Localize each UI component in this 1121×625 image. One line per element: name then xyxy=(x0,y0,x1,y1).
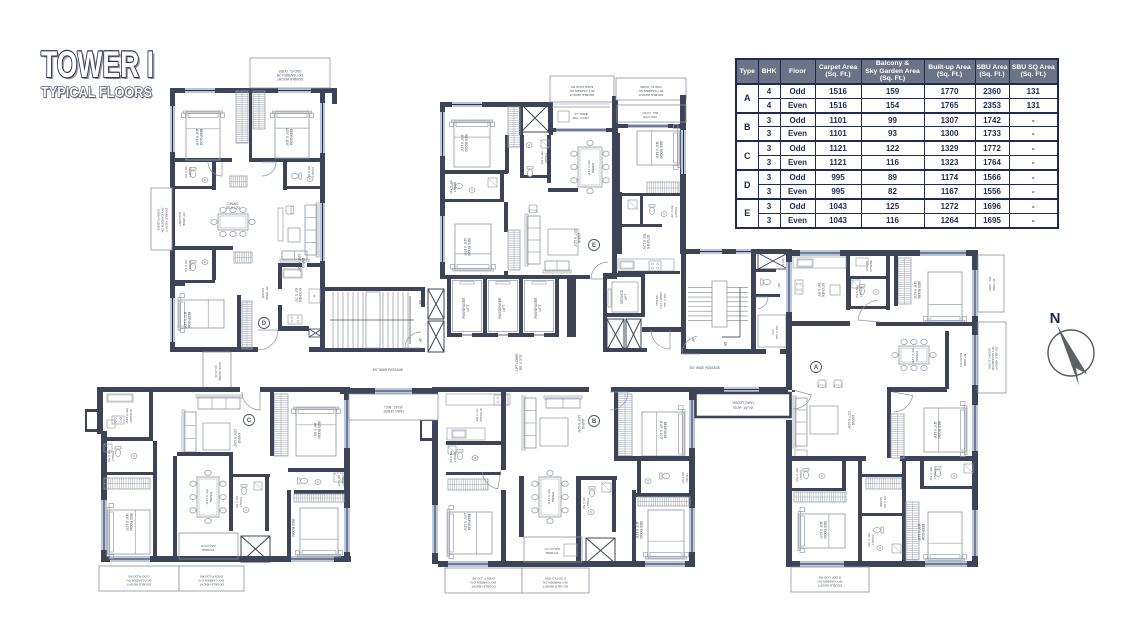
svg-text:HVAC LEDGE: HVAC LEDGE xyxy=(731,401,753,405)
svg-text:BAL. CONY: BAL. CONY xyxy=(988,277,992,292)
svg-text:PASSENGER: PASSENGER xyxy=(498,297,502,318)
svg-text:UP: UP xyxy=(418,338,422,342)
svg-text:11'6" X 12'0": 11'6" X 12'0" xyxy=(913,281,917,299)
svg-text:11'5" X 11'6": 11'5" X 11'6" xyxy=(917,523,921,541)
svg-text:8'0" X 6'0": 8'0" X 6'0" xyxy=(775,325,779,339)
svg-text:5'0 X 8'6: 5'0 X 8'6 xyxy=(184,260,188,272)
svg-text:DN: DN xyxy=(723,342,727,347)
svg-text:8'0" X 5'6": 8'0" X 5'6" xyxy=(795,468,799,482)
svg-text:9'6" X 8'0": 9'6" X 8'0" xyxy=(817,283,821,297)
svg-text:10'0" X 11'6": 10'0" X 11'6" xyxy=(285,128,289,146)
svg-text:8'0" X 7'0": 8'0" X 7'0" xyxy=(294,288,298,302)
svg-text:8'0 X 12'0: 8'0 X 12'0 xyxy=(226,206,240,210)
svg-text:11'6" X 12'0": 11'6" X 12'0" xyxy=(819,521,823,539)
svg-text:8'0" X 5'0": 8'0" X 5'0" xyxy=(449,180,453,194)
svg-text:LIFT: LIFT xyxy=(502,305,506,312)
svg-text:FOYER: FOYER xyxy=(261,288,265,299)
svg-text:7'6" X 8'0": 7'6" X 8'0" xyxy=(475,408,479,422)
svg-text:O DD FLOO RS: O DD FLOO RS xyxy=(128,575,150,579)
svg-text:8'0" X 5'6": 8'0" X 5'6" xyxy=(929,467,933,481)
svg-text:EVEN F LOO RS: EVEN F LOO RS xyxy=(472,577,495,581)
svg-text:14'0" X 12'0": 14'0" X 12'0" xyxy=(463,513,467,531)
svg-text:BA LCONY: BA LCONY xyxy=(200,544,215,548)
svg-text:8'0 X 5'6: 8'0 X 5'6 xyxy=(307,166,311,178)
svg-text:BAL. CONY: BAL. CONY xyxy=(573,116,589,120)
svg-text:8'0" WIDE PASSAGE: 8'0" WIDE PASSAGE xyxy=(373,368,403,372)
svg-text:BAL. CONY: BAL. CONY xyxy=(642,111,658,115)
svg-text:8'0" X 12'0": 8'0" X 12'0" xyxy=(205,489,209,504)
svg-text:8'0 X 5'0: 8'0 X 5'0 xyxy=(449,451,453,463)
svg-text:5'0 X 8'6: 5'0 X 8'6 xyxy=(184,166,188,178)
svg-text:WC: WC xyxy=(777,283,781,288)
svg-text:8'0" X 12'0": 8'0" X 12'0" xyxy=(587,160,591,175)
svg-text:8'0" X 12'0": 8'0" X 12'0" xyxy=(642,234,646,250)
svg-text:8'0" X 5'0": 8'0" X 5'0" xyxy=(540,151,544,165)
svg-text:EVEN F LOO RS: EVEN F LOO RS xyxy=(200,575,223,579)
svg-text:UP: UP xyxy=(691,338,695,342)
svg-text:LIFT: LIFT xyxy=(624,294,628,301)
svg-text:C: C xyxy=(247,418,252,424)
svg-text:ODD FL. OORS: ODD FL. OORS xyxy=(279,69,302,73)
svg-text:E: E xyxy=(592,243,596,249)
svg-text:8'0" X 12'6": 8'0" X 12'6" xyxy=(911,348,915,363)
svg-text:O ODF L OO RS: O ODF L OO RS xyxy=(819,576,841,580)
svg-text:8'0 X 5'0: 8'0 X 5'0 xyxy=(107,450,111,462)
svg-text:8'6" X 8'0": 8'6" X 8'0" xyxy=(313,423,317,437)
svg-text:3'7 WIDE: 3'7 WIDE xyxy=(869,260,873,272)
svg-text:20'7" X 12'0": 20'7" X 12'0" xyxy=(573,229,577,247)
svg-text:11'0" X 11'6": 11'0" X 11'6" xyxy=(933,421,937,439)
svg-text:EVEN FLOORS: EVEN FLOORS xyxy=(157,209,161,230)
svg-text:D: D xyxy=(262,321,267,327)
svg-text:14'9" X 12'6": 14'9" X 12'6" xyxy=(577,415,581,433)
svg-text:BALCO NY: BALCO NY xyxy=(544,547,559,551)
svg-text:AT 32'0": AT 32'0" xyxy=(781,257,785,267)
svg-text:N: N xyxy=(1050,310,1061,327)
svg-text:(FLAT - B/C): (FLAT - B/C) xyxy=(385,405,403,409)
svg-text:DN: DN xyxy=(418,300,422,305)
svg-text:8'0" X 12'2": 8'0" X 12'2" xyxy=(125,408,129,423)
svg-text:PASSENGER: PASSENGER xyxy=(462,297,466,318)
svg-text:8'0 X 5'0: 8'0 X 5'0 xyxy=(855,286,859,298)
svg-text:19'0" X 12'6": 19'0" X 12'6" xyxy=(233,429,237,447)
svg-text:11'6" X 11'0": 11'6" X 11'0" xyxy=(460,134,464,152)
svg-text:8'0 X 7'6": 8'0 X 7'6" xyxy=(670,206,674,219)
svg-text:ODD FL. OORS: ODD FL. OORS xyxy=(640,85,662,89)
svg-text:8'0" X 12'0": 8'0" X 12'0" xyxy=(547,489,551,504)
svg-text:(FLAT-D): (FLAT-D) xyxy=(214,365,218,377)
svg-text:11'6" X 11'6": 11'6" X 11'6" xyxy=(195,128,199,146)
svg-text:8'0" X 37'0": 8'0" X 37'0" xyxy=(519,354,523,370)
svg-text:PASSENGER: PASSENGER xyxy=(534,297,538,318)
svg-text:B: B xyxy=(592,419,597,425)
svg-text:LIFT: LIFT xyxy=(466,305,470,312)
svg-text:6'0 X 6'2": 6'0 X 6'2" xyxy=(337,475,341,487)
svg-text:11'6" X 12'0": 11'6" X 12'0" xyxy=(125,513,129,531)
svg-text:TYPICAL FLOORS: TYPICAL FLOORS xyxy=(41,84,152,101)
svg-text:8'0" WIDE PASSAGE: 8'0" WIDE PASSAGE xyxy=(690,366,720,370)
svg-text:5'8" X 8'0": 5'8" X 8'0" xyxy=(663,293,667,307)
svg-text:11'6" X 10'9": 11'6" X 10'9" xyxy=(463,238,467,256)
svg-text:LIFT: LIFT xyxy=(538,305,542,312)
svg-text:11'6" X 11'0": 11'6" X 11'0" xyxy=(655,141,659,159)
svg-text:8'0" X 6'0": 8'0" X 6'0" xyxy=(867,533,871,547)
svg-text:8'0 X 5'6": 8'0 X 5'6" xyxy=(681,472,685,484)
svg-text:EVEN FLO ORS: EVEN FLO ORS xyxy=(987,348,991,369)
svg-text:O DD FLO ORS: O DD FLO ORS xyxy=(545,577,567,581)
svg-text:EVEN FLOO RS: EVEN FLOO RS xyxy=(571,85,593,89)
svg-text:20'7" X 12'6": 20'7" X 12'6" xyxy=(847,411,851,429)
svg-text:(FLAT - A/ B): (FLAT - A/ B) xyxy=(733,405,752,409)
svg-text:TOWER I: TOWER I xyxy=(41,44,154,85)
svg-text:8'0 X 5'0: 8'0 X 5'0 xyxy=(582,497,586,509)
svg-text:BALCO NY: BALCO NY xyxy=(959,353,963,368)
svg-text:BALCONY: BALCONY xyxy=(178,212,182,226)
svg-text:A: A xyxy=(814,365,819,371)
svg-text:11'10" X 10'0": 11'10" X 10'0" xyxy=(659,420,663,440)
svg-text:11'0" X 11'6": 11'0" X 11'6" xyxy=(183,311,187,329)
svg-text:8'0 X 5'0: 8'0 X 5'0 xyxy=(235,496,239,508)
svg-text:8'0 X 6'0: 8'0 X 6'0 xyxy=(883,496,887,508)
